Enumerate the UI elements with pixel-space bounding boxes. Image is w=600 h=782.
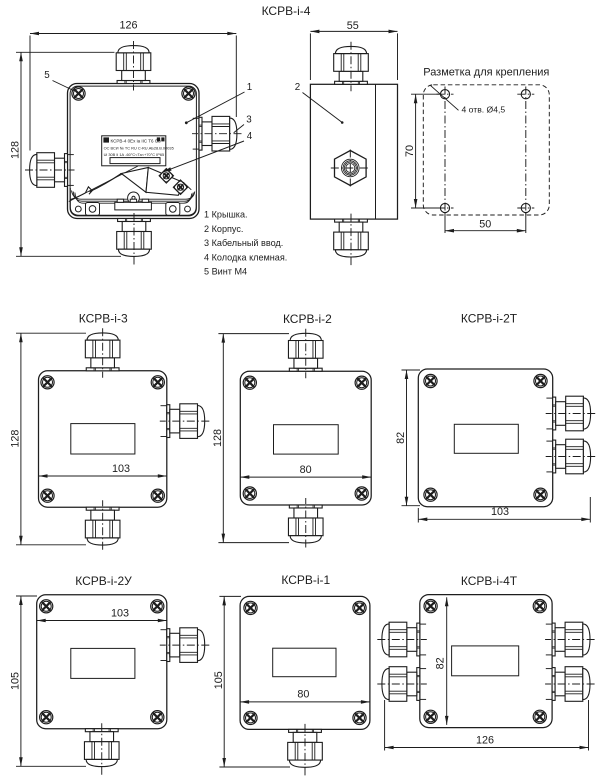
svg-text:128: 128: [10, 141, 22, 159]
svg-text:3 Кабельный ввод.: 3 Кабельный ввод.: [204, 238, 283, 248]
svg-text:5: 5: [44, 70, 50, 81]
svg-text:Разметка для крепления: Разметка для крепления: [423, 67, 549, 79]
svg-text:70: 70: [404, 145, 416, 157]
svg-text:1 Крышка.: 1 Крышка.: [204, 210, 248, 220]
svg-text:2 Корпус.: 2 Корпус.: [204, 224, 243, 234]
svg-text:126: 126: [119, 20, 137, 32]
svg-text:КСРВ-i-1: КСРВ-i-1: [281, 573, 330, 587]
svg-text:55: 55: [347, 20, 359, 32]
svg-text:КСРВ-i-4Т: КСРВ-i-4Т: [461, 574, 518, 588]
svg-text:КСРВ-i-2Т: КСРВ-i-2Т: [461, 311, 518, 325]
svg-text:Ui 30В Ii 1А -60°С<Та<+70°С: Ui 30В Ii 1А -60°С<Та<+70°С IP65: [104, 152, 165, 157]
svg-text:128: 128: [212, 429, 224, 447]
svg-text:105: 105: [10, 672, 22, 690]
svg-text:4: 4: [247, 131, 253, 142]
svg-text:128: 128: [10, 430, 22, 448]
svg-text:ОС ВСИ № ТС RU C-RU.АБ28.В.000: ОС ВСИ № ТС RU C-RU.АБ28.В.00035: [104, 145, 174, 150]
svg-text:80: 80: [297, 689, 309, 701]
svg-text:80: 80: [300, 464, 312, 476]
svg-text:82: 82: [395, 432, 407, 444]
svg-text:126: 126: [476, 734, 494, 746]
svg-text:103: 103: [112, 463, 130, 475]
svg-text:КСРВ-i-3: КСРВ-i-3: [79, 311, 128, 325]
svg-text:103: 103: [111, 607, 129, 619]
svg-text:1: 1: [247, 82, 252, 93]
svg-text:4 Колодка клемная.: 4 Колодка клемная.: [204, 252, 287, 262]
svg-text:КСРВ-4 0Ex ia IIC T6 Gb: КСРВ-4 0Ex ia IIC T6 Gb: [111, 139, 162, 144]
svg-text:105: 105: [213, 671, 225, 689]
svg-text:КСРВ-i-2У: КСРВ-i-2У: [75, 574, 132, 588]
svg-text:103: 103: [491, 506, 509, 518]
svg-text:5 Винт М4: 5 Винт М4: [204, 267, 247, 277]
svg-text:КСРВ-i-4: КСРВ-i-4: [262, 4, 311, 18]
svg-text:4 отв. Ø4,5: 4 отв. Ø4,5: [462, 105, 506, 115]
svg-text:50: 50: [479, 219, 491, 231]
svg-text:3: 3: [246, 115, 252, 126]
svg-text:82: 82: [434, 657, 446, 669]
svg-text:КСРВ-i-2: КСРВ-i-2: [283, 312, 332, 326]
svg-text:2: 2: [295, 82, 300, 93]
